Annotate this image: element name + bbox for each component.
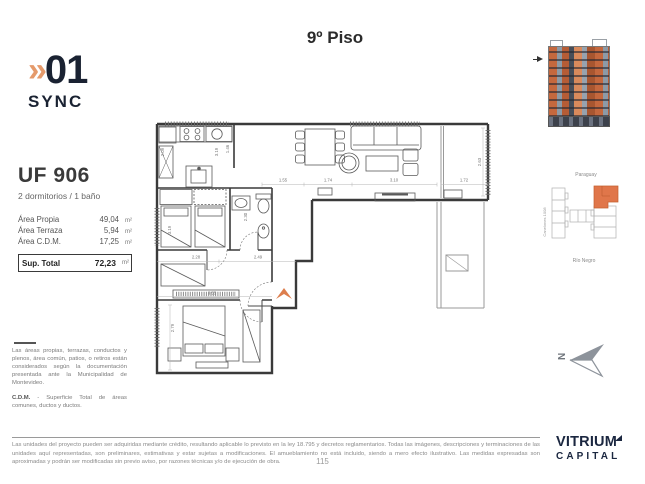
kitchen-fixtures [159,126,232,187]
page-number: 115 [0,457,645,466]
doors [207,232,272,322]
area-value: 49,04 [93,215,119,224]
street-label-top: Paraguay [575,172,597,178]
compass-arrow-upper [570,344,604,360]
side-table [403,149,418,161]
svg-text:1.46: 1.46 [225,144,230,153]
dimension-lines [157,128,488,370]
floor-plan: 1.55 1.74 3.10 1.72 2.63 2.09 3.19 1.46 … [138,103,512,405]
svg-text:2.30: 2.30 [243,212,248,221]
svg-text:2.09: 2.09 [160,147,165,156]
area-table: Área Propia 49,04 m² Área Terraza 5,94 m… [18,215,132,248]
notes-divider [14,342,36,344]
ac-unit [318,188,332,195]
svg-text:3.55: 3.55 [208,291,217,296]
kitchen-sink-icon [206,127,232,142]
svg-text:3.19: 3.19 [167,225,172,234]
double-bed-icon [183,306,225,356]
outer-walls [157,124,488,373]
total-value: 72,23 [88,258,116,268]
bedroom2-furniture [168,306,260,368]
area-row: Área Terraza 5,94 m² [18,226,132,237]
dining-set [296,129,345,165]
fridge-icon [159,127,176,143]
side-table [403,164,418,176]
area-unit: m² [119,229,132,235]
cdm-text: - Superficie Total de áreas comunes, duc… [12,395,127,409]
toilet-icon [258,199,269,213]
svg-text:3.10: 3.10 [390,178,399,183]
area-unit: m² [119,218,132,224]
unit-code: UF 906 [18,164,132,188]
vitrium-wordmark: VITRIUM [556,435,622,450]
dimension-labels: 1.55 1.74 3.10 1.72 2.63 2.09 3.19 1.46 … [160,144,482,332]
total-label: Sup. Total [22,259,88,268]
svg-text:3.19: 3.19 [214,147,219,156]
logo-chevron-icon: » [28,53,44,87]
area-unit: m² [119,240,132,246]
key-map: Paraguay Río Negro Canelones 1008 [540,166,632,268]
bed-bench [196,362,228,368]
entrance-arrow-icon [276,288,292,299]
area-label: Área Propia [18,215,93,224]
logo-subtitle: SYNC [28,93,87,110]
terrace [444,190,462,198]
toilet-tank [256,194,271,199]
bathroom-fixtures [232,194,271,238]
window-hatches [157,124,488,347]
hallway-furniture [161,264,239,298]
street-label-left: Canelones 1008 [542,207,547,237]
highlighted-unit [594,186,618,208]
area-row: Área C.D.M. 17,25 m² [18,237,132,248]
single-bed-icon [161,206,191,247]
kitchen-counter [159,126,232,142]
area-value: 5,94 [93,226,119,235]
svg-text:1.72: 1.72 [460,178,469,183]
closet [194,190,226,205]
logo-number: 01 [45,50,88,90]
svg-text:1.55: 1.55 [279,178,288,183]
street-label-bottom: Río Negro [573,258,596,264]
area-label: Área Terraza [18,226,93,235]
svg-text:2.63: 2.63 [477,157,482,166]
nightstand [226,348,239,361]
terrace-glass-wall [441,126,444,198]
north-label: N [557,353,568,360]
north-compass: N [552,338,612,384]
single-bed-icon [195,206,225,247]
building-photo [546,40,612,128]
area-row: Área Propia 49,04 m² [18,215,132,226]
dining-table [305,129,335,165]
unit-card: UF 906 2 dormitorios / 1 baño Área Propi… [18,164,132,272]
footer-divider [12,437,540,438]
sofa-icon [351,126,421,150]
cdm-note: C.D.M. - Superficie Total de áreas comun… [12,395,127,411]
building-facade [548,46,610,118]
notes-block: Las áreas propias, terrazas, conductos y… [12,348,127,411]
notes-paragraph: Las áreas propias, terrazas, conductos y… [12,348,127,388]
total-unit: m² [116,260,129,266]
floor-pointer-tail [533,59,538,61]
area-label: Área C.D.M. [18,237,93,246]
stove-icon [180,127,204,142]
bidet-icon [258,224,269,238]
bedroom1-furniture [160,190,226,248]
closet [160,190,192,205]
terrace-bench [444,190,462,198]
common-area-walls [437,202,484,308]
page-title: 9º Piso [270,28,400,48]
building-base [548,116,610,127]
unit-subtitle: 2 dormitorios / 1 baño [18,191,132,201]
area-value: 17,25 [93,237,119,246]
sync-logo: » 01 SYNC [28,50,87,110]
coffee-table [366,156,398,171]
total-area-box: Sup. Total 72,23 m² [18,254,132,272]
cdm-term: C.D.M. [12,395,30,401]
svg-text:2.28: 2.28 [192,255,201,260]
svg-text:1.74: 1.74 [324,178,333,183]
living-room-furniture [318,126,421,201]
compass-arrow-lower [570,360,602,376]
svg-text:2.79: 2.79 [170,323,175,332]
brochure-page: { "brand": { "chevrons": "»", "number": … [0,0,645,484]
svg-text:2.49: 2.49 [254,255,263,260]
